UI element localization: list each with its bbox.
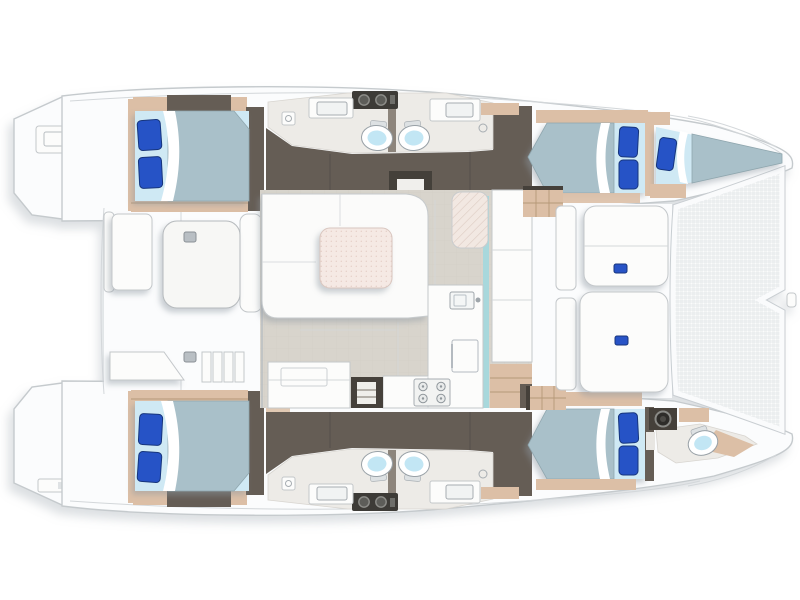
cockpit-table — [163, 221, 240, 308]
deck-fitting — [184, 352, 196, 362]
pillow — [618, 127, 639, 158]
vanity-sink — [430, 481, 480, 503]
faucet — [476, 298, 481, 303]
galley-drawers — [490, 364, 532, 408]
pillow — [619, 446, 638, 475]
saloon — [260, 186, 566, 410]
pillow — [138, 156, 163, 188]
bench-seat — [112, 214, 152, 290]
cup-holder — [614, 264, 627, 273]
double-bed — [135, 401, 249, 491]
storage-console — [556, 298, 576, 390]
chaise-seat — [452, 192, 488, 248]
pillow — [619, 160, 638, 189]
storage-console — [556, 206, 576, 290]
double-bed — [528, 409, 648, 479]
deck-fitting — [184, 232, 196, 242]
cup-holder — [615, 336, 628, 345]
wardrobe — [167, 490, 231, 507]
port-bathrooms — [268, 91, 519, 153]
pillow — [618, 412, 639, 443]
aft-bench — [240, 214, 262, 312]
port-aft-cabin — [128, 95, 264, 212]
catamaran-floor-plan: Top-down floor plan of a sailing catamar… — [0, 0, 800, 600]
vanity-sink — [309, 484, 353, 504]
top-loader-fixture — [352, 91, 398, 109]
double-bed — [135, 111, 249, 201]
bow-sprit — [787, 293, 796, 307]
double-bed — [528, 123, 648, 193]
companionway-steps-starboard — [351, 377, 383, 408]
stove-4-burner — [414, 379, 450, 406]
shower-drain — [282, 112, 295, 125]
shower-drain — [282, 477, 295, 490]
vanity-sink — [430, 99, 480, 121]
starboard-aft-cabin — [128, 390, 264, 507]
pillow — [138, 413, 163, 445]
forward-cockpit — [556, 206, 668, 392]
top-loader-fixture — [352, 493, 398, 511]
starboard-bathrooms — [268, 449, 519, 511]
floor-plan-canvas: Top-down floor plan of a sailing catamar… — [0, 0, 800, 600]
dining-table — [320, 228, 392, 288]
wardrobe — [167, 95, 231, 112]
trampoline-net — [673, 170, 796, 430]
pillow — [137, 451, 162, 483]
vanity-sink — [309, 98, 353, 118]
pillow — [137, 119, 162, 151]
aft-cabinet — [268, 362, 350, 408]
